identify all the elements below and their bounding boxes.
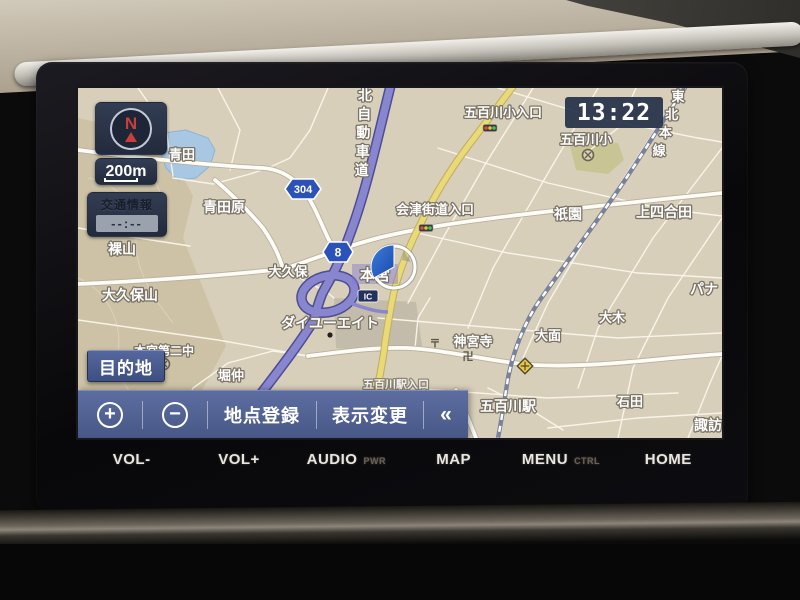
svg-text:304: 304 <box>294 184 313 196</box>
map-label: 青田 <box>169 147 195 162</box>
display-change-button[interactable]: 表示変更 <box>317 391 423 438</box>
hw-button-map[interactable]: MAP <box>400 446 507 472</box>
traffic-info-panel[interactable]: 交通情報 --:-- <box>87 192 167 237</box>
scale-bar-icon <box>104 178 138 182</box>
route-shield-8: 8 <box>323 242 353 262</box>
hw-button-menu[interactable]: MENUCTRL <box>507 446 614 472</box>
hw-button-label: MAP <box>436 451 471 468</box>
hw-button-home[interactable]: HOME <box>615 446 722 472</box>
map-label: 会津街道入口 <box>396 202 474 217</box>
school-icon <box>583 150 594 161</box>
route-shield-304: 304 <box>285 179 321 199</box>
hw-button-sublabel: PWR <box>363 456 386 466</box>
map-label: 五百川小入口 <box>464 105 542 120</box>
car-dashboard-photo: 304 8 北自動車道 東北本線 青田青田原裸山大久保山大久保堀仲本宮第二中ダイ… <box>0 0 800 600</box>
collapse-toolbar-button[interactable]: « <box>424 391 468 438</box>
map-toolbar: + − 地点登録 表示変更 « <box>78 390 468 438</box>
map-label-char: 道 <box>355 162 369 178</box>
compass-button[interactable]: N <box>95 102 167 155</box>
hw-button-label: VOL+ <box>218 451 260 468</box>
traffic-light-icon <box>419 225 433 232</box>
svg-text:8: 8 <box>335 246 342 260</box>
map-label: 五百川小 <box>560 132 612 147</box>
compass-dial: N <box>110 108 152 150</box>
map-label-char: 北 <box>358 88 372 103</box>
map-label-char: 東 <box>671 89 684 104</box>
map-label-char: 線 <box>653 143 667 158</box>
map-label: 上四合田 <box>636 204 692 220</box>
map-label: 大久保山 <box>102 287 158 303</box>
compass-arrow-icon <box>125 132 137 142</box>
map-label: 卍 <box>463 350 474 363</box>
map-label: 大面 <box>535 328 561 343</box>
traffic-info-time: --:-- <box>96 215 158 232</box>
compass-north-label: N <box>125 116 137 131</box>
traffic-info-title: 交通情報 <box>88 196 166 213</box>
map-label: 堀仲 <box>218 368 244 383</box>
zoom-in-icon: + <box>97 402 123 428</box>
map-label-char: 動 <box>356 125 370 141</box>
hw-button-audio[interactable]: AUDIOPWR <box>293 446 400 472</box>
map-label: 神宮寺 <box>453 334 492 349</box>
hw-button-label: MENU <box>522 451 568 468</box>
map-label: 大木 <box>599 310 626 325</box>
map-label: パナ <box>690 281 718 297</box>
hw-button-sublabel: CTRL <box>574 456 600 466</box>
hw-button-vol[interactable]: VOL- <box>78 446 185 472</box>
lower-metal-trim <box>0 502 800 549</box>
map-label: 五百川駅 <box>480 398 537 414</box>
hw-button-label: AUDIO <box>307 451 358 468</box>
poi-dot <box>327 332 332 337</box>
zoom-in-button[interactable]: + <box>78 391 142 438</box>
traffic-light-icon <box>483 125 497 132</box>
map-label: 〒 <box>430 337 441 350</box>
zoom-out-button[interactable]: − <box>143 391 207 438</box>
zoom-out-icon: − <box>162 402 188 428</box>
map-label: 青田原 <box>203 199 245 215</box>
map-label: ダイユーエイト <box>281 315 379 331</box>
nav-screen[interactable]: 304 8 北自動車道 東北本線 青田青田原裸山大久保山大久保堀仲本宮第二中ダイ… <box>78 88 722 438</box>
map-scale-button[interactable]: 200m <box>95 158 157 185</box>
hw-button-vol[interactable]: VOL+ <box>185 446 292 472</box>
map-label-char: 車 <box>356 143 370 159</box>
clock-display: 13:22 <box>565 97 663 128</box>
lower-dashboard <box>0 544 800 600</box>
destination-button[interactable]: 目的地 <box>87 350 165 382</box>
map-label: 祇園 <box>553 206 582 222</box>
hardware-button-row: VOL-VOL+AUDIOPWRMAPMENUCTRLHOME <box>78 446 722 472</box>
map-label: 大久保 <box>268 264 308 279</box>
register-point-button[interactable]: 地点登録 <box>208 391 316 438</box>
svg-text:IC: IC <box>364 292 373 302</box>
ic-badge: IC <box>358 290 378 302</box>
map-label: 裸山 <box>108 241 136 257</box>
map-canvas[interactable]: 304 8 北自動車道 東北本線 青田青田原裸山大久保山大久保堀仲本宮第二中ダイ… <box>78 88 722 438</box>
map-label-char: 自 <box>357 106 371 122</box>
hw-button-label: VOL- <box>113 451 151 468</box>
map-label-char: 北 <box>665 107 678 122</box>
map-label: 石田 <box>616 394 643 409</box>
map-label: 諏訪 <box>694 417 722 433</box>
hw-button-label: HOME <box>645 451 692 468</box>
